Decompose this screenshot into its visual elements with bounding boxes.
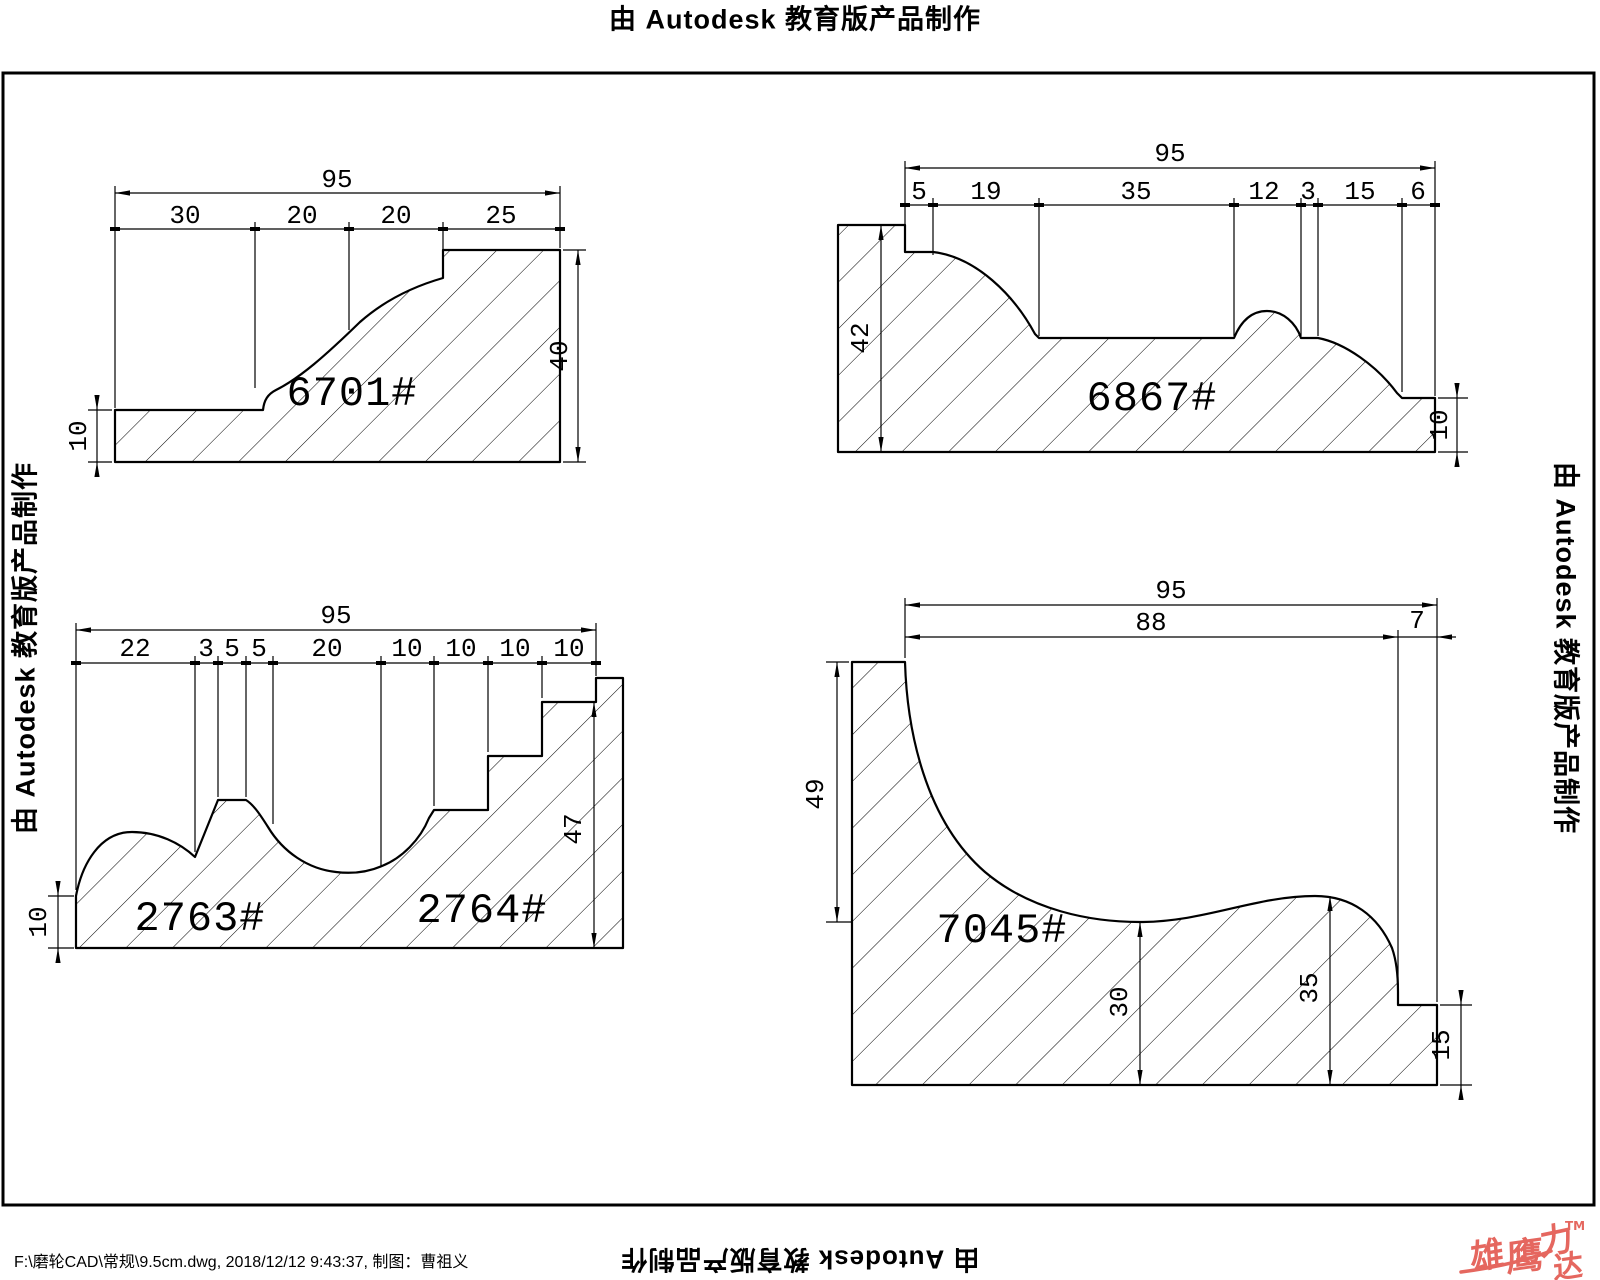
dim-label-base-2763: 10 xyxy=(24,906,54,937)
dim-label-seg5-6867: 3 xyxy=(1300,177,1316,207)
dim-label-seg4-6701: 25 xyxy=(485,201,516,231)
dim-label-crest-7045: 35 xyxy=(1295,972,1325,1003)
profile-drawing-6867: 95 5 19 35 12 3 15 6 42 10 6867# xyxy=(838,139,1468,465)
dim-label-height-7045: 49 xyxy=(801,778,831,809)
dim-label-overall-6867: 95 xyxy=(1154,139,1185,169)
part-number-7045: 7045# xyxy=(936,907,1067,955)
dim-label-seg7-6867: 6 xyxy=(1410,177,1426,207)
dim-label-overall-7045: 95 xyxy=(1155,576,1186,606)
dim-label-seg1-2763: 22 xyxy=(119,634,150,664)
watermark-left: 由 Autodesk 教育版产品制作 xyxy=(4,462,43,834)
dim-label-seg9-2763: 10 xyxy=(553,634,584,664)
part-number-6867: 6867# xyxy=(1086,375,1217,423)
dim-label-seg2-6867: 19 xyxy=(970,177,1001,207)
watermark-bottom: 由 Autodesk 教育版产品制作 xyxy=(621,1243,980,1280)
plot-file-info: F:\磨轮CAD\常规\9.5cm.dwg, 2018/12/12 9:43:3… xyxy=(14,1248,468,1272)
logo-tm-mark: TM xyxy=(1565,1219,1585,1233)
dim-label-overall-2763: 95 xyxy=(320,601,351,631)
dim-label-right-6867: 10 xyxy=(1425,409,1455,440)
dim-label-seg2-6701: 20 xyxy=(286,201,317,231)
profile-drawing-6701: 95 30 20 20 25 40 10 6701# xyxy=(64,165,586,476)
part-number-2764: 2764# xyxy=(416,887,547,935)
dim-label-height-6701: 40 xyxy=(545,340,575,371)
dim-label-seg5-2763: 20 xyxy=(311,634,342,664)
dim-label-valley-7045: 30 xyxy=(1105,986,1135,1017)
dim-label-seg3-2763: 5 xyxy=(224,634,240,664)
dim-label-seg6-2763: 10 xyxy=(391,634,422,664)
dim-label-seg4-2763: 5 xyxy=(251,634,267,664)
dim-label-seg7-2763: 10 xyxy=(445,634,476,664)
watermark-top: 由 Autodesk 教育版产品制作 xyxy=(609,0,981,37)
dim-label-width2-7045: 88 xyxy=(1135,608,1166,638)
dim-label-seg6-6867: 15 xyxy=(1344,177,1375,207)
dim-label-height-6867: 42 xyxy=(846,322,876,353)
dim-label-seg8-2763: 10 xyxy=(499,634,530,664)
logo-char-xiong: 雄 xyxy=(1469,1225,1506,1280)
part-outline-7045 xyxy=(852,662,1437,1085)
dim-label-overall-6701: 95 xyxy=(321,165,352,195)
dim-label-seg3-6867: 35 xyxy=(1120,177,1151,207)
part-outline-6701 xyxy=(115,250,560,462)
part-number-2763: 2763# xyxy=(134,895,265,943)
logo-char-da: 达 xyxy=(1552,1240,1583,1280)
dim-label-seg1-6701: 30 xyxy=(169,201,200,231)
dim-label-seg4-6867: 12 xyxy=(1248,177,1279,207)
profile-drawing-7045: 95 88 7 49 30 35 15 7045# xyxy=(801,576,1472,1098)
drawing-canvas: 95 30 20 20 25 40 10 6701# xyxy=(0,0,1600,1280)
watermark-right: 由 Autodesk 教育版产品制作 xyxy=(1549,462,1588,834)
dim-label-seg1-6867: 5 xyxy=(911,177,927,207)
profile-drawing-2763-2764: 95 22 3 5 5 20 10 10 10 10 47 10 2763# 2… xyxy=(24,601,623,961)
dim-label-seg3-6701: 20 xyxy=(380,201,411,231)
dim-label-height-2763: 47 xyxy=(559,813,589,844)
dim-label-right-7045: 15 xyxy=(1427,1029,1457,1060)
dim-label-step-7045: 7 xyxy=(1409,606,1425,636)
part-number-6701: 6701# xyxy=(286,370,417,418)
dim-label-base-6701: 10 xyxy=(64,420,94,451)
plot-sheet: 95 30 20 20 25 40 10 6701# xyxy=(0,0,1600,1280)
dim-label-seg2-2763: 3 xyxy=(198,634,214,664)
